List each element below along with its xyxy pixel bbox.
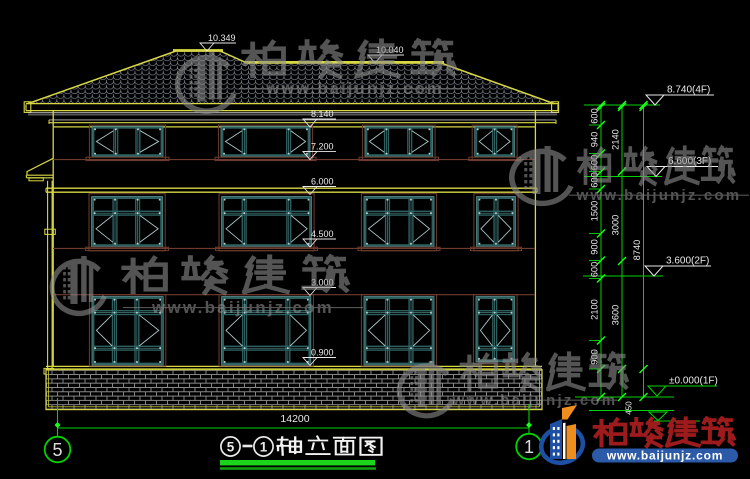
svg-text:6.000: 6.000 (311, 176, 334, 186)
svg-text:450: 450 (625, 401, 634, 415)
svg-text:8740: 8740 (632, 240, 642, 261)
svg-text:3600: 3600 (611, 305, 621, 326)
svg-text:7.200: 7.200 (311, 141, 334, 151)
svg-text:www.baijunjz.com: www.baijunjz.com (606, 449, 723, 463)
svg-text:5: 5 (227, 440, 235, 455)
svg-text:600: 600 (590, 108, 600, 124)
svg-text:3000: 3000 (611, 215, 621, 236)
svg-text:600: 600 (590, 262, 600, 278)
svg-text:4.500: 4.500 (311, 229, 334, 239)
svg-text:5: 5 (52, 440, 62, 460)
svg-text:8.740(4F): 8.740(4F) (667, 85, 710, 96)
svg-text:14200: 14200 (280, 413, 309, 425)
svg-text:0.900: 0.900 (311, 347, 334, 357)
svg-text:2100: 2100 (590, 299, 600, 320)
svg-text:±0.000(1F): ±0.000(1F) (669, 376, 718, 387)
svg-text:940: 940 (590, 132, 600, 148)
svg-text:2140: 2140 (611, 129, 621, 150)
svg-text:1: 1 (524, 437, 534, 457)
svg-text:10.349: 10.349 (208, 33, 236, 43)
svg-text:3.600(2F): 3.600(2F) (666, 256, 709, 267)
svg-text:8.140: 8.140 (311, 109, 334, 119)
svg-text:1: 1 (260, 440, 268, 455)
svg-text:900: 900 (590, 239, 600, 255)
